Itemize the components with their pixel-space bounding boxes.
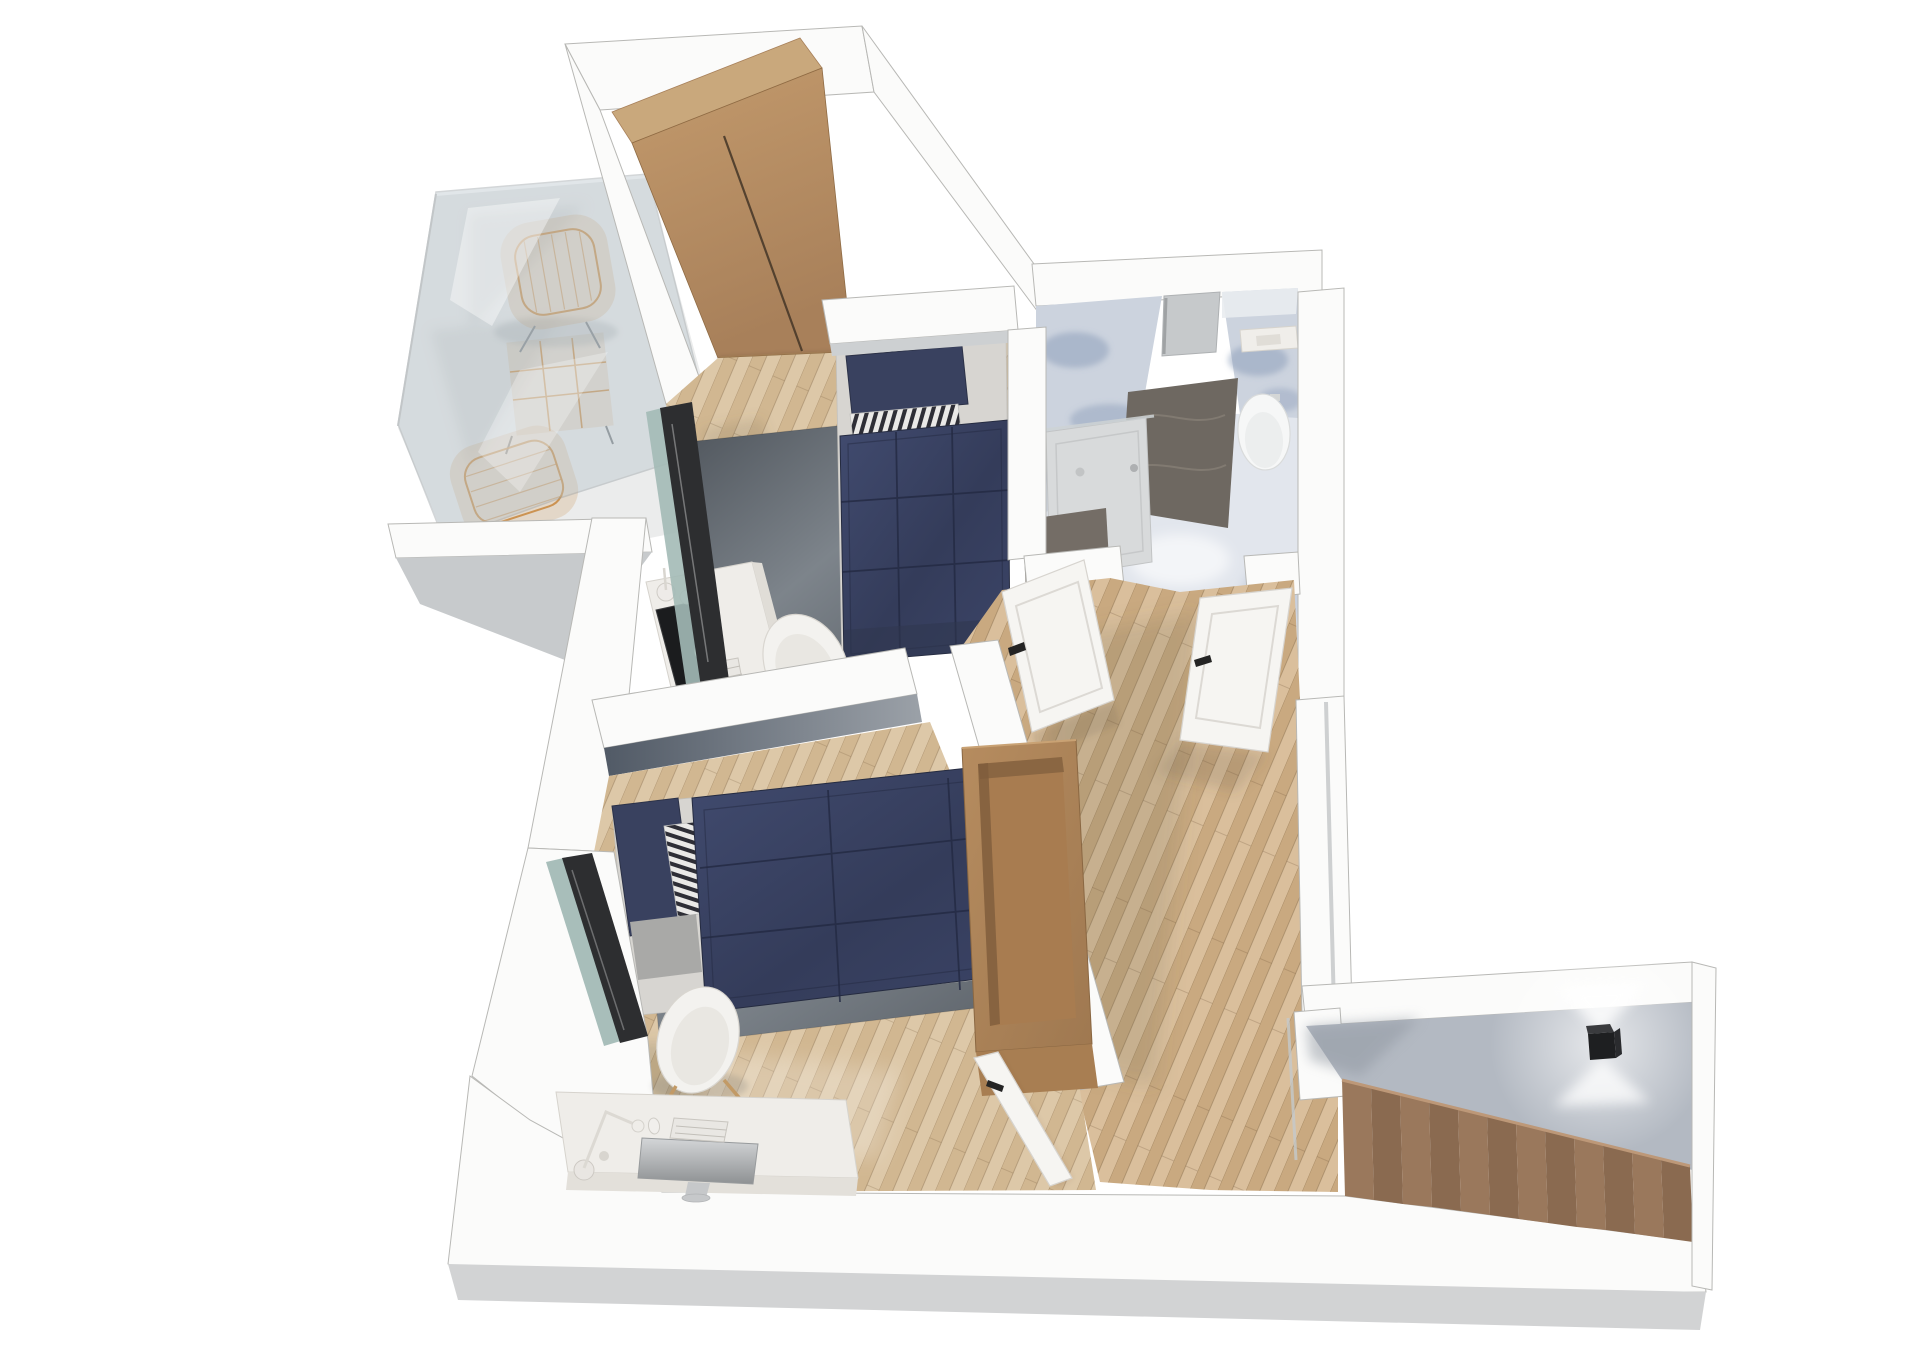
niche-shadow xyxy=(1164,298,1166,354)
stair-east-wall xyxy=(1692,962,1716,1290)
shower-drain xyxy=(1076,468,1085,477)
step xyxy=(1429,1101,1461,1211)
bed-single xyxy=(836,334,1010,662)
bathroom-east-wall xyxy=(1298,288,1344,700)
step xyxy=(1603,1145,1635,1234)
mattress-corner xyxy=(630,914,702,980)
step xyxy=(1487,1116,1519,1219)
desk-lamp-head xyxy=(632,1120,644,1132)
computer-back xyxy=(638,1138,758,1184)
flush-buttons xyxy=(1256,334,1281,346)
keyboard xyxy=(670,1118,728,1142)
step xyxy=(1661,1159,1693,1242)
storage-unit xyxy=(962,740,1098,1096)
pillow-navy xyxy=(846,346,968,414)
step xyxy=(1545,1130,1577,1227)
desk-accessory xyxy=(599,1151,609,1161)
desk-lamp-base xyxy=(574,1160,594,1180)
floorplan-render: Upper-floor 3D dollhouse floor plan rend… xyxy=(0,0,1920,1358)
desk xyxy=(556,1092,858,1202)
wall-niche xyxy=(1162,292,1220,356)
marble-wall-top-band xyxy=(1222,288,1298,318)
step xyxy=(1400,1094,1432,1207)
step xyxy=(1574,1137,1606,1230)
computer-base xyxy=(682,1194,710,1202)
step xyxy=(1342,1080,1374,1200)
hall-east-wall xyxy=(1296,696,1352,1014)
step xyxy=(1458,1109,1490,1215)
bathroom-west-wall xyxy=(1008,327,1046,560)
step xyxy=(1632,1152,1664,1238)
shower-control xyxy=(1130,464,1138,472)
floorplan-svg: Upper-floor 3D dollhouse floor plan rend… xyxy=(0,0,1920,1358)
step xyxy=(1516,1123,1548,1223)
step xyxy=(1371,1087,1403,1204)
lamp-front xyxy=(1588,1032,1616,1060)
